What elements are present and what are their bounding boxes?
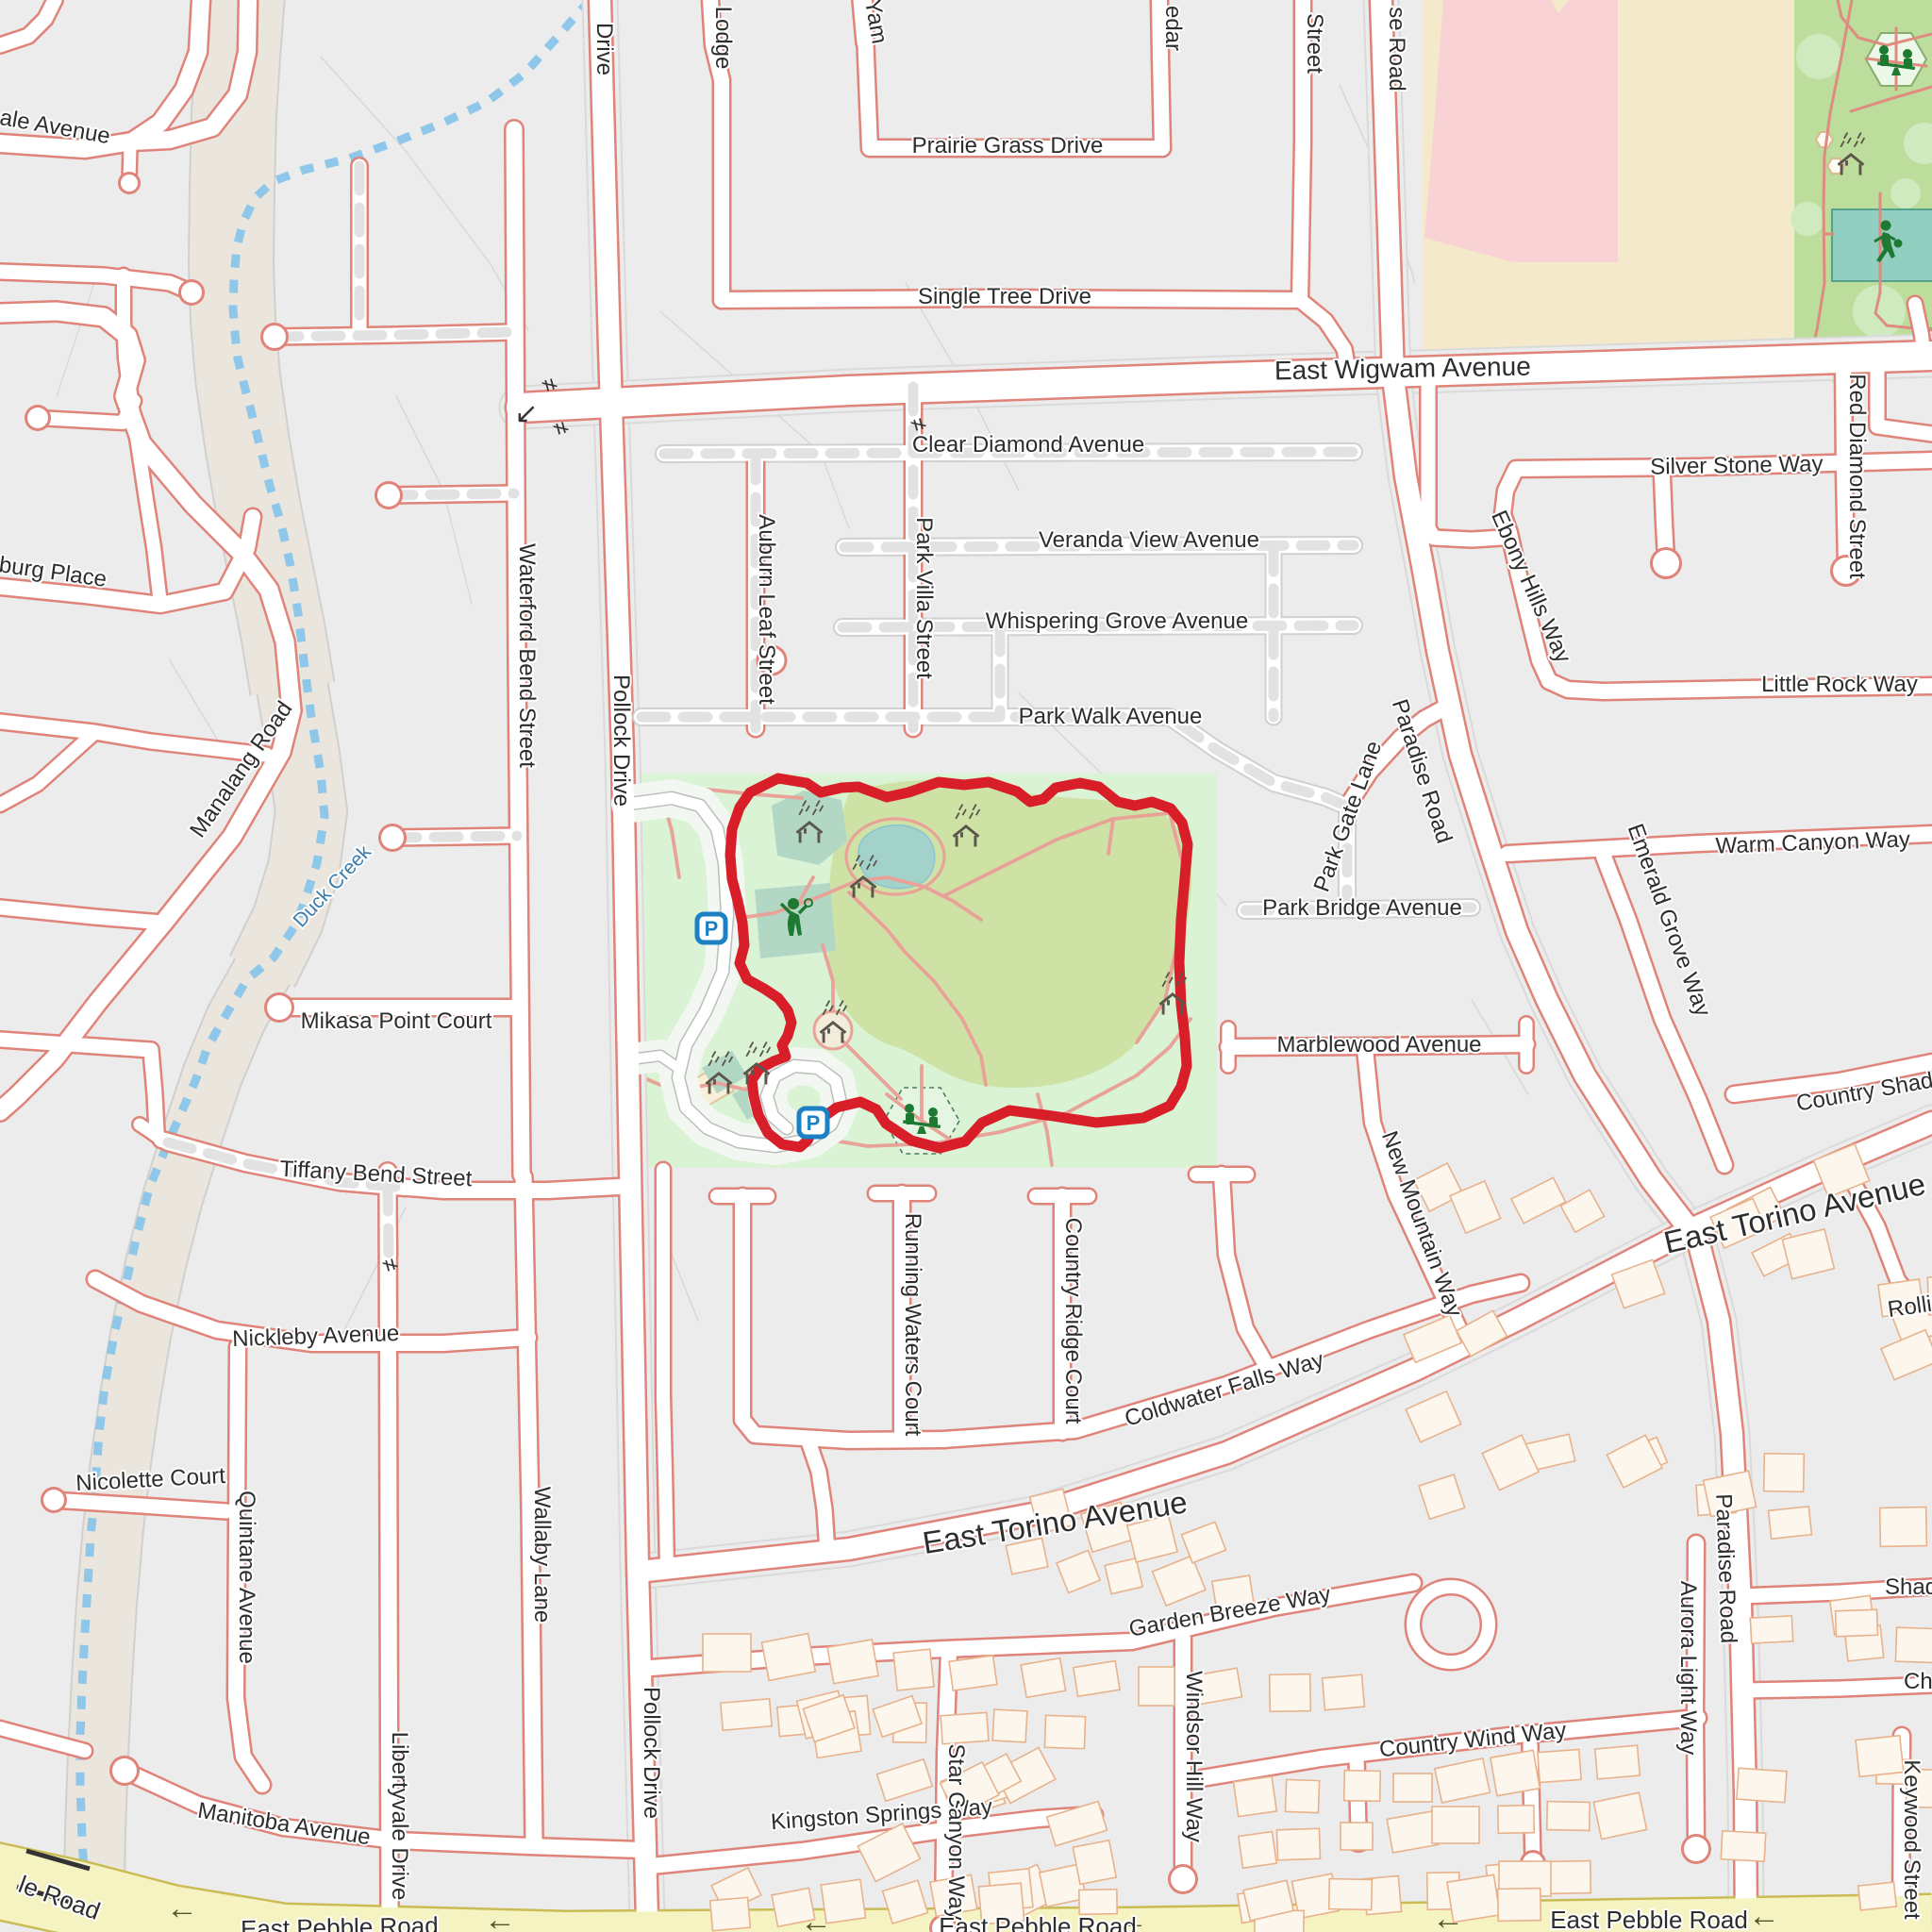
svg-text:←: ← [166, 1890, 198, 1926]
svg-text:Shady: Shady [1885, 1574, 1932, 1600]
svg-text:Street: Street [1302, 13, 1327, 74]
svg-text:Park Villa Street: Park Villa Street [911, 517, 937, 679]
svg-text:Auburn Leaf Street: Auburn Leaf Street [754, 514, 779, 705]
svg-text:Silver Stone Way: Silver Stone Way [1650, 451, 1824, 479]
svg-text:↙: ↙ [514, 398, 538, 429]
svg-text:Little Rock Way: Little Rock Way [1761, 672, 1918, 697]
svg-text:Single Tree Drive: Single Tree Drive [918, 284, 1091, 309]
svg-text:Paradise Road: Paradise Road [1710, 1493, 1741, 1644]
svg-text:East Pebble Road: East Pebble Road [1550, 1906, 1748, 1932]
svg-text:Libertyvale Drive: Libertyvale Drive [387, 1732, 412, 1901]
svg-text:Prairie Grass Drive: Prairie Grass Drive [912, 133, 1104, 158]
svg-text:Whispering Grove Avenue: Whispering Grove Avenue [986, 608, 1248, 634]
svg-text:Lodge: Lodge [710, 7, 736, 70]
svg-text:Mikasa Point Court: Mikasa Point Court [301, 1008, 492, 1034]
svg-text:Wallaby Lane: Wallaby Lane [529, 1487, 555, 1624]
svg-text:←: ← [1748, 1898, 1780, 1932]
svg-text:Keywood Street: Keywood Street [1899, 1759, 1924, 1920]
svg-text:Drive: Drive [591, 23, 617, 75]
svg-text:East Wigwam Avenue: East Wigwam Avenue [1274, 352, 1531, 386]
svg-text:P: P [807, 1111, 821, 1135]
svg-text:edar: edar [1160, 6, 1186, 51]
svg-text:Waterford Bend Street: Waterford Bend Street [514, 543, 540, 768]
svg-text:Marblewood Avenue: Marblewood Avenue [1276, 1032, 1481, 1058]
svg-text:Quintane Avenue: Quintane Avenue [234, 1491, 259, 1664]
svg-text:Country Ridge Court: Country Ridge Court [1060, 1218, 1086, 1424]
svg-text:Pollock Drive: Pollock Drive [608, 675, 634, 807]
svg-text:East Pebble Road: East Pebble Road [241, 1911, 439, 1932]
svg-text:Park Walk Avenue: Park Walk Avenue [1019, 704, 1203, 729]
svg-text:Star Canyon Way: Star Canyon Way [943, 1743, 969, 1920]
svg-text:se Road: se Road [1384, 7, 1409, 91]
svg-text:Clear Diamond Avenue: Clear Diamond Avenue [912, 432, 1144, 458]
svg-text:Che: Che [1904, 1669, 1932, 1694]
svg-text:Red Diamond Street: Red Diamond Street [1844, 374, 1870, 579]
svg-text:←: ← [1432, 1901, 1464, 1932]
svg-text:P: P [705, 917, 719, 941]
svg-text:Windsor Hill Way: Windsor Hill Way [1181, 1671, 1207, 1842]
svg-text:Aurora Light Way: Aurora Light Way [1675, 1581, 1701, 1756]
svg-text:Pollock Drive: Pollock Drive [639, 1687, 664, 1819]
svg-text:East Pebble Road: East Pebble Road [939, 1912, 1137, 1932]
svg-text:←: ← [800, 1904, 832, 1932]
svg-text:Veranda View Avenue: Veranda View Avenue [1039, 527, 1259, 553]
svg-text:Park Bridge Avenue: Park Bridge Avenue [1262, 895, 1462, 921]
svg-text:Running Waters Court: Running Waters Court [900, 1213, 925, 1437]
svg-text:←: ← [484, 1902, 516, 1932]
